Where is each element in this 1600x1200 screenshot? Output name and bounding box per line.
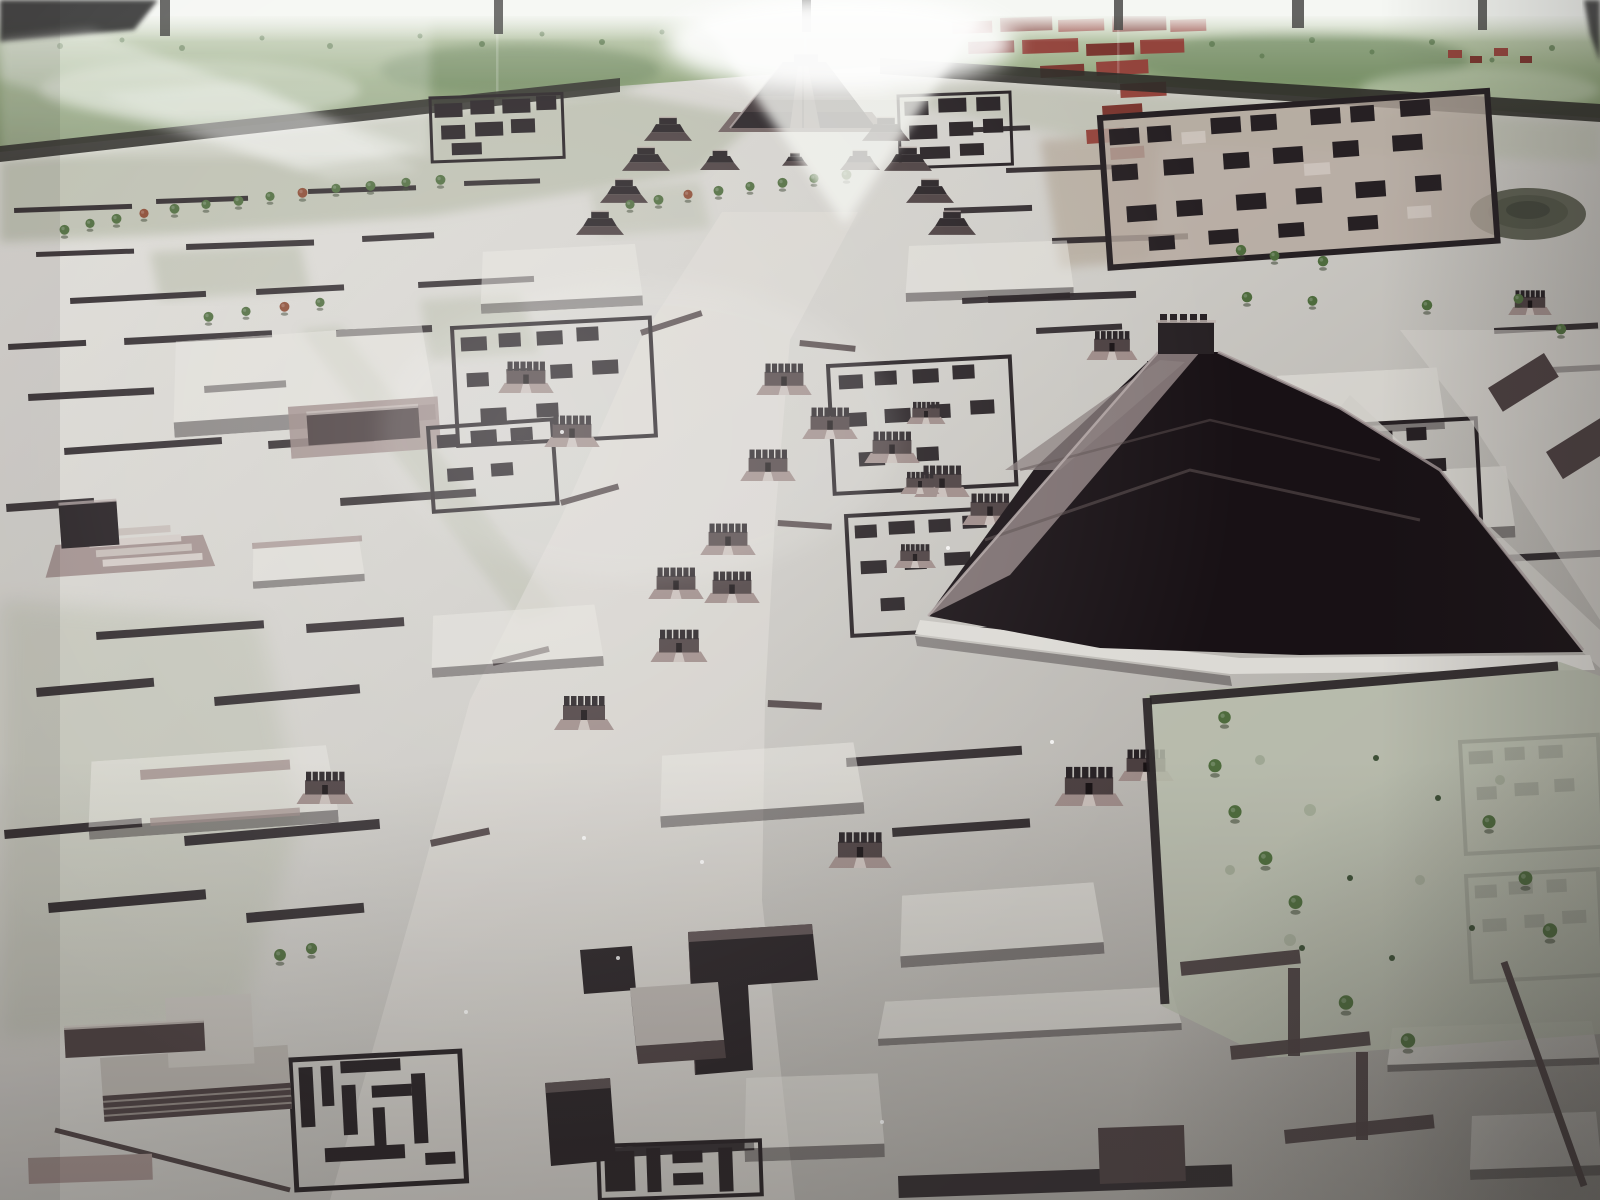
teotihuacan-model-photo (0, 0, 1600, 1200)
window-post-5 (1292, 0, 1304, 28)
photo-canvas (0, 0, 1600, 1200)
